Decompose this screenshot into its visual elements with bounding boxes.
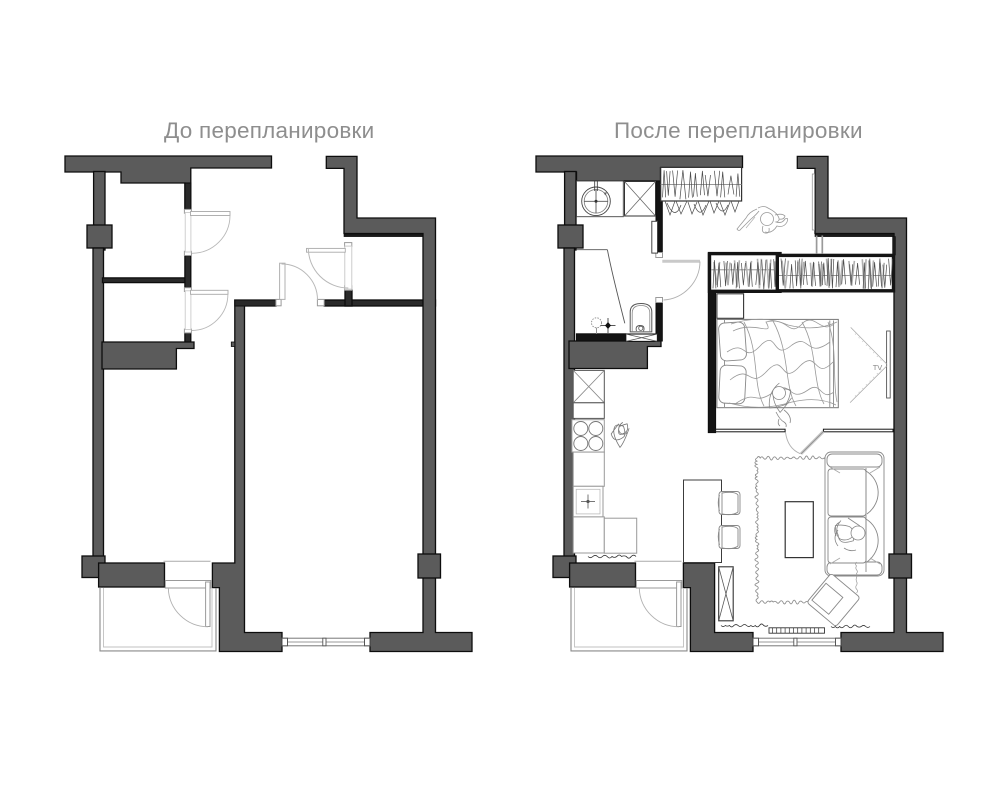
svg-text:TV: TV [873,363,883,372]
